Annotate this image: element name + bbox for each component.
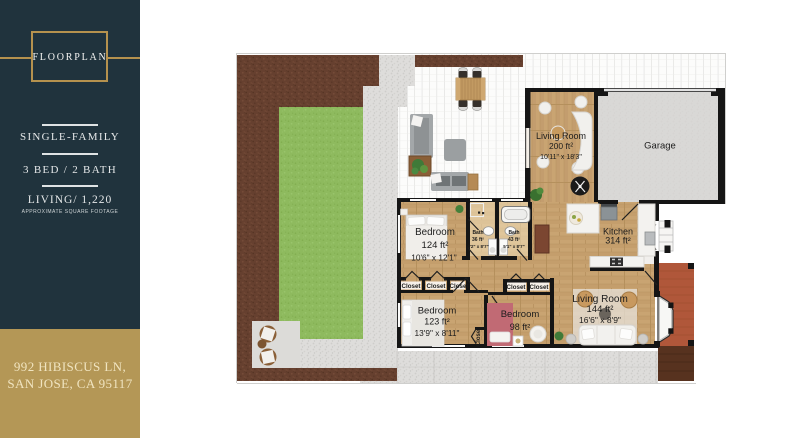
svg-text:36 ft²: 36 ft² bbox=[472, 237, 484, 243]
svg-text:16'6" x 8'9": 16'6" x 8'9" bbox=[579, 315, 621, 325]
svg-text:4'2" x 8'7": 4'2" x 8'7" bbox=[467, 244, 488, 249]
svg-text:13'9" x 8'11": 13'9" x 8'11" bbox=[415, 328, 460, 338]
svg-text:124 ft²: 124 ft² bbox=[422, 240, 449, 251]
svg-text:10'11" x 18'3": 10'11" x 18'3" bbox=[540, 154, 582, 161]
svg-text:10'6" x 12'1": 10'6" x 12'1" bbox=[411, 253, 457, 263]
svg-text:98 ft²: 98 ft² bbox=[510, 322, 531, 332]
svg-text:Closet: Closet bbox=[530, 284, 549, 291]
svg-text:Closet: Closet bbox=[402, 283, 421, 290]
svg-text:Bath: Bath bbox=[472, 230, 483, 236]
svg-text:Bedroom: Bedroom bbox=[418, 306, 457, 317]
svg-text:Closet: Closet bbox=[450, 283, 469, 290]
svg-text:Closet: Closet bbox=[507, 284, 526, 291]
svg-text:Garage: Garage bbox=[644, 141, 676, 152]
svg-text:Bedroom: Bedroom bbox=[501, 309, 540, 320]
svg-text:200 ft²: 200 ft² bbox=[549, 141, 573, 151]
svg-text:43 ft²: 43 ft² bbox=[508, 237, 520, 243]
svg-text:5'1" x 8'7": 5'1" x 8'7" bbox=[503, 244, 524, 249]
svg-text:144 ft²: 144 ft² bbox=[587, 304, 614, 315]
svg-text:123 ft²: 123 ft² bbox=[424, 317, 450, 327]
svg-text:314 ft²: 314 ft² bbox=[605, 236, 631, 246]
svg-text:Closet: Closet bbox=[476, 328, 482, 346]
svg-text:Bath: Bath bbox=[508, 230, 519, 236]
svg-text:Closet: Closet bbox=[427, 283, 446, 290]
svg-text:Living Room: Living Room bbox=[536, 131, 586, 141]
svg-text:Bedroom: Bedroom bbox=[415, 227, 455, 238]
